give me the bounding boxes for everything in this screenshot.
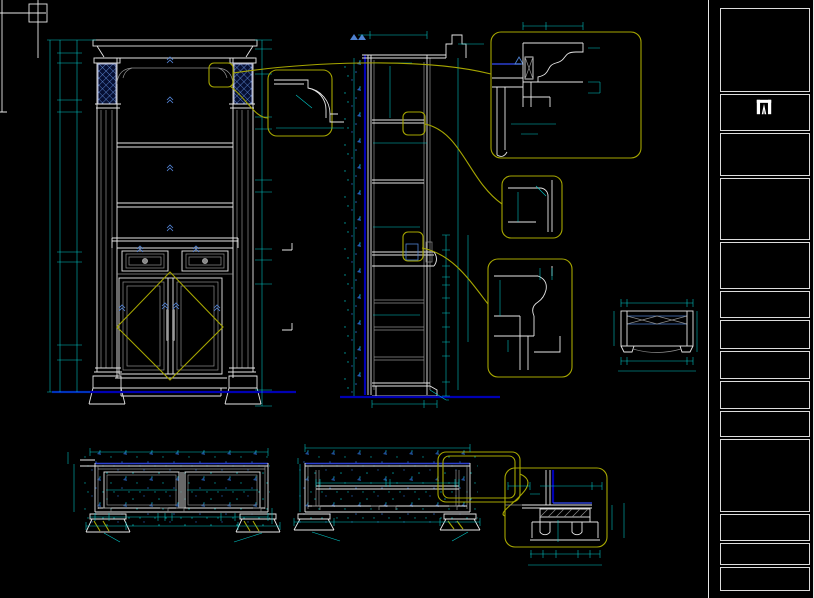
cad-sheet xyxy=(0,0,814,598)
bb-section-drawing xyxy=(294,444,520,541)
owner-confirm-label xyxy=(721,440,809,442)
section-cut-marks xyxy=(282,243,292,330)
version-label xyxy=(721,412,809,414)
review-label xyxy=(721,352,809,354)
measure-box xyxy=(720,291,810,318)
project-label xyxy=(721,179,809,181)
product-box xyxy=(720,242,810,289)
vertical-section-drawing xyxy=(340,31,500,408)
product-label xyxy=(721,243,809,245)
detail-corner-arc xyxy=(268,70,344,136)
project-box xyxy=(720,178,810,240)
scale-box xyxy=(720,514,810,541)
detail-crown-molding xyxy=(491,22,641,158)
door-handle-left xyxy=(166,309,169,341)
carving-section-drawing xyxy=(614,299,697,371)
approve-label xyxy=(721,382,809,384)
elevation-drawing xyxy=(47,40,296,406)
aa-section-drawing xyxy=(68,448,280,542)
detail-counter-edge xyxy=(488,259,572,377)
callout-box-shelf xyxy=(403,112,425,135)
detail-shelf-edge xyxy=(502,176,562,238)
draft-label xyxy=(721,321,809,323)
measure-label xyxy=(721,292,809,294)
review-box xyxy=(720,351,810,379)
door-handle-right xyxy=(172,309,175,341)
approve-box xyxy=(720,381,810,409)
drawing-no-label xyxy=(721,544,809,546)
cad-canvas xyxy=(0,0,708,598)
sheet-title-box xyxy=(720,8,810,92)
capital-hatch-left xyxy=(98,64,116,104)
diamond-overlay xyxy=(117,272,223,380)
tucson-wood-logo-icon xyxy=(755,98,773,116)
scale-label xyxy=(721,515,809,517)
drawer-knob-left xyxy=(142,258,147,263)
callout-details xyxy=(209,22,641,516)
page-info-box xyxy=(720,567,810,591)
base-detail-drawing xyxy=(505,468,624,565)
callout-box-capital xyxy=(209,63,233,87)
drawing-no-box xyxy=(720,543,810,565)
owner-confirm-box xyxy=(720,439,810,512)
wall-speckle xyxy=(344,55,362,395)
draft-box xyxy=(720,320,810,349)
drawer-knob-right xyxy=(202,258,207,263)
title-block-panel xyxy=(708,0,814,598)
sheet-frame-corner xyxy=(0,0,47,112)
logo-box xyxy=(720,94,810,131)
company-box xyxy=(720,133,810,176)
version-box xyxy=(720,411,810,437)
